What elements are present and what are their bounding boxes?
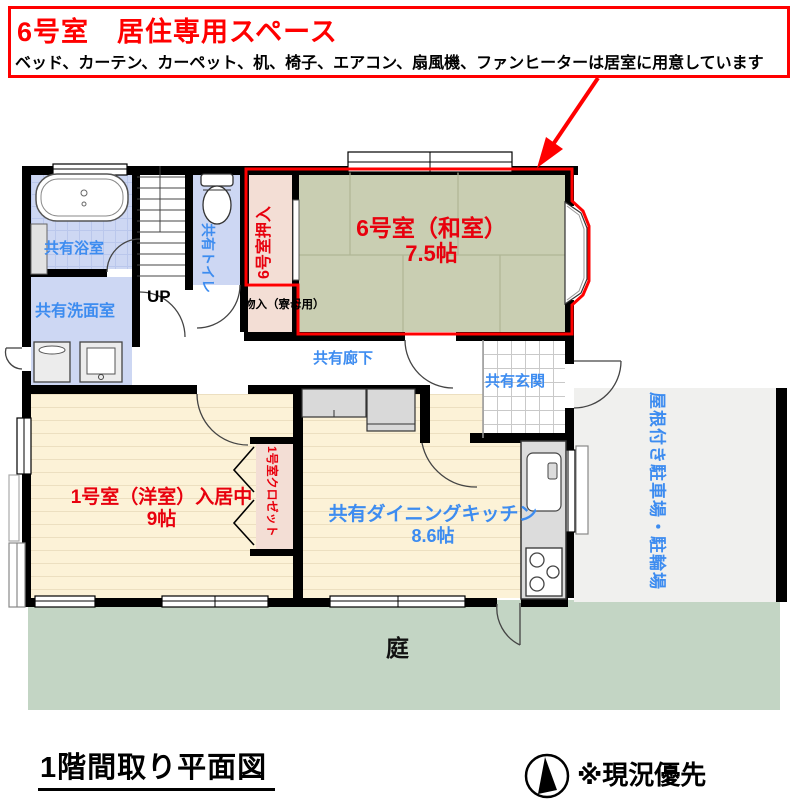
washroom-label: 共有洗面室 <box>35 303 115 321</box>
room1-label: 1号室（洋室）入居中 9帖 <box>30 487 293 531</box>
room1-size: 9帖 <box>30 509 293 531</box>
washroom-area <box>31 277 132 385</box>
callout-box: 6号室 居住専用スペース ベッド、カーテン、カーペット、机、椅子、エアコン、扇風… <box>8 6 790 78</box>
storage-label: 物入（寮母用） <box>244 299 325 312</box>
dining-kitchen-label: 共有ダイニングキッチン 8.6帖 <box>303 504 563 547</box>
entrance-label: 共有玄関 <box>485 373 545 390</box>
room6-name: 6号室（和室） <box>298 215 565 241</box>
room1-name: 1号室（洋室）入居中 <box>30 487 293 509</box>
toilet-label: 共有トイレ <box>200 223 216 335</box>
parking-area <box>574 388 778 602</box>
floorplan-page: 6号室 居住専用スペース ベッド、カーテン、カーペット、机、椅子、エアコン、扇風… <box>0 0 800 800</box>
stairs-up-label: UP <box>147 287 171 307</box>
dk-size: 8.6帖 <box>303 526 563 547</box>
plan-caption: 1階間取り平面図 <box>38 752 275 791</box>
dk-name: 共有ダイニングキッチン <box>303 504 563 526</box>
compass-icon <box>526 755 568 797</box>
room6-size: 7.5帖 <box>298 241 565 266</box>
parking-label: 屋根付き駐車場・駐輪場 <box>647 392 667 606</box>
callout-subtitle: ベッド、カーテン、カーペット、机、椅子、エアコン、扇風機、ファンヒーターは居室に… <box>15 49 764 73</box>
current-status-note: ※現況優先 <box>577 761 706 791</box>
bathroom-label: 共有浴室 <box>44 240 104 257</box>
room1-closet-label: 1号室クロゼット <box>264 446 278 552</box>
room6-label: 6号室（和室） 7.5帖 <box>298 215 565 267</box>
stairs-treads <box>137 166 185 276</box>
garden-label: 庭 <box>386 635 409 661</box>
corridor-label: 共有廊下 <box>313 350 373 367</box>
callout-title: 6号室 居住専用スペース <box>17 10 338 49</box>
room6-closet-label: 6号室押入 <box>256 177 274 279</box>
callout-arrow <box>537 78 598 168</box>
